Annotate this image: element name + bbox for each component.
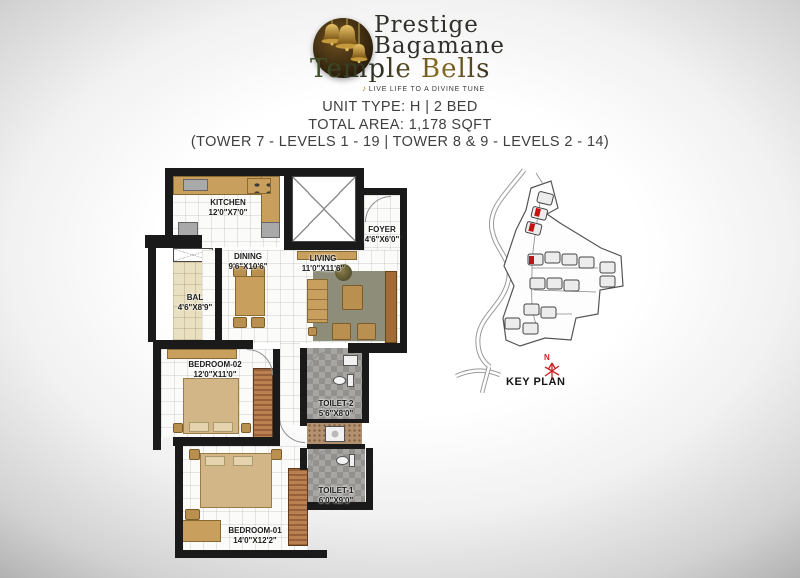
- room-label-balcony: BAL 4'6"X8'9": [155, 293, 235, 312]
- music-note-icon: ♪: [362, 84, 367, 93]
- kitchen-sink: [183, 179, 208, 191]
- wall: [173, 437, 280, 446]
- room-dims: 5'6"X8'0": [291, 409, 381, 419]
- unit-info: UNIT TYPE: H | 2 BED TOTAL AREA: 1,178 S…: [0, 99, 800, 152]
- wall: [165, 168, 173, 243]
- north-label: N: [544, 353, 550, 362]
- tv-unit: [385, 271, 397, 343]
- room-name: FOYER: [352, 225, 412, 235]
- pillow: [233, 456, 253, 466]
- room-name: LIVING: [278, 254, 368, 264]
- room-name: TOILET-1: [291, 486, 381, 496]
- stair-lift-shaft: [292, 176, 356, 242]
- room-name: BEDROOM-01: [210, 526, 300, 536]
- side-table: [308, 327, 317, 336]
- wall: [400, 188, 407, 350]
- room-label-toilet-2: TOILET-2 5'6"X8'0": [291, 399, 381, 418]
- wall: [145, 235, 202, 248]
- tagline-text: LIVE LIFE TO A DIVINE TUNE: [369, 86, 485, 93]
- dining-chair: [233, 317, 247, 328]
- armchair: [332, 323, 351, 340]
- brand-tagline: ♪LIVE LIFE TO A DIVINE TUNE: [362, 84, 485, 93]
- room-label-bedroom-02: BEDROOM-02 12'0"X11'0": [170, 360, 260, 379]
- kitchen-slab: [261, 222, 280, 238]
- side-table: [189, 449, 200, 460]
- room-label-foyer: FOYER 4'6"X6'0": [352, 225, 412, 244]
- logo: Prestige Bagamane Temple Bells ♪LIVE LIF…: [310, 6, 505, 92]
- key-plan-map: N KEY PLAN: [448, 168, 673, 393]
- toilet-wc: [336, 456, 349, 465]
- wall: [165, 168, 364, 176]
- side-table: [173, 423, 183, 433]
- unit-type-line: UNIT TYPE: H | 2 BED: [0, 99, 800, 117]
- unit-floor-plan: KITCHEN 12'0"X7'0" DINING 9'6"X10'6" LIV…: [145, 165, 430, 575]
- key-plan-label: KEY PLAN: [506, 376, 565, 388]
- kitchen-stove: [247, 178, 271, 194]
- pillow: [189, 422, 209, 432]
- wall: [307, 419, 362, 423]
- room-label-kitchen: KITCHEN 12'0"X7'0": [183, 198, 273, 217]
- window-seat: [167, 349, 237, 359]
- dining-chair: [251, 317, 265, 328]
- cistern: [349, 454, 355, 467]
- wall: [284, 168, 292, 250]
- wall: [177, 550, 327, 558]
- armchair: [357, 323, 376, 340]
- room-label-living: LIVING 11'0"X11'6": [278, 254, 368, 273]
- washbasin: [343, 355, 358, 366]
- wall: [348, 343, 407, 353]
- room-dims: 4'6"X6'0": [352, 235, 412, 245]
- room-name: KITCHEN: [183, 198, 273, 208]
- side-table: [241, 423, 251, 433]
- room-label-toilet-1: TOILET-1 6'0"X9'0": [291, 486, 381, 505]
- side-table: [271, 449, 282, 460]
- total-area-line: TOTAL AREA: 1,178 SQFT: [0, 117, 800, 135]
- tower-levels-line: (TOWER 7 - LEVELS 1 - 19 | TOWER 8 & 9 -…: [0, 134, 800, 152]
- toilet-wc: [333, 376, 346, 385]
- cistern: [347, 374, 354, 387]
- wall: [153, 340, 161, 450]
- room-name: BEDROOM-02: [170, 360, 260, 370]
- room-name: BAL: [155, 293, 235, 303]
- wall: [300, 448, 307, 470]
- wall: [307, 444, 365, 449]
- coffee-table: [342, 285, 363, 310]
- dining-table: [235, 276, 265, 316]
- room-dims: 14'0"X12'2": [210, 536, 300, 546]
- sofa: [307, 279, 328, 323]
- room-dims: 4'6"X8'9": [155, 303, 235, 313]
- wall: [175, 446, 183, 558]
- pillow: [205, 456, 225, 466]
- room-dims: 12'0"X7'0": [183, 208, 273, 218]
- room-dims: 12'0"X11'0": [170, 370, 260, 380]
- room-dims: 11'0"X11'6": [278, 264, 368, 274]
- room-label-bedroom-01: BEDROOM-01 14'0"X12'2": [210, 526, 300, 545]
- utility-washbasin: [325, 426, 345, 442]
- wall: [153, 340, 253, 349]
- pillow: [213, 422, 233, 432]
- room-dims: 6'0"X9'0": [291, 496, 381, 506]
- desk-chair: [185, 509, 200, 520]
- room-name: TOILET-2: [291, 399, 381, 409]
- floorplan-poster: Prestige Bagamane Temple Bells ♪LIVE LIF…: [0, 0, 800, 578]
- wall: [273, 349, 280, 437]
- brand-name-temple-bells: Temple Bells: [310, 57, 490, 82]
